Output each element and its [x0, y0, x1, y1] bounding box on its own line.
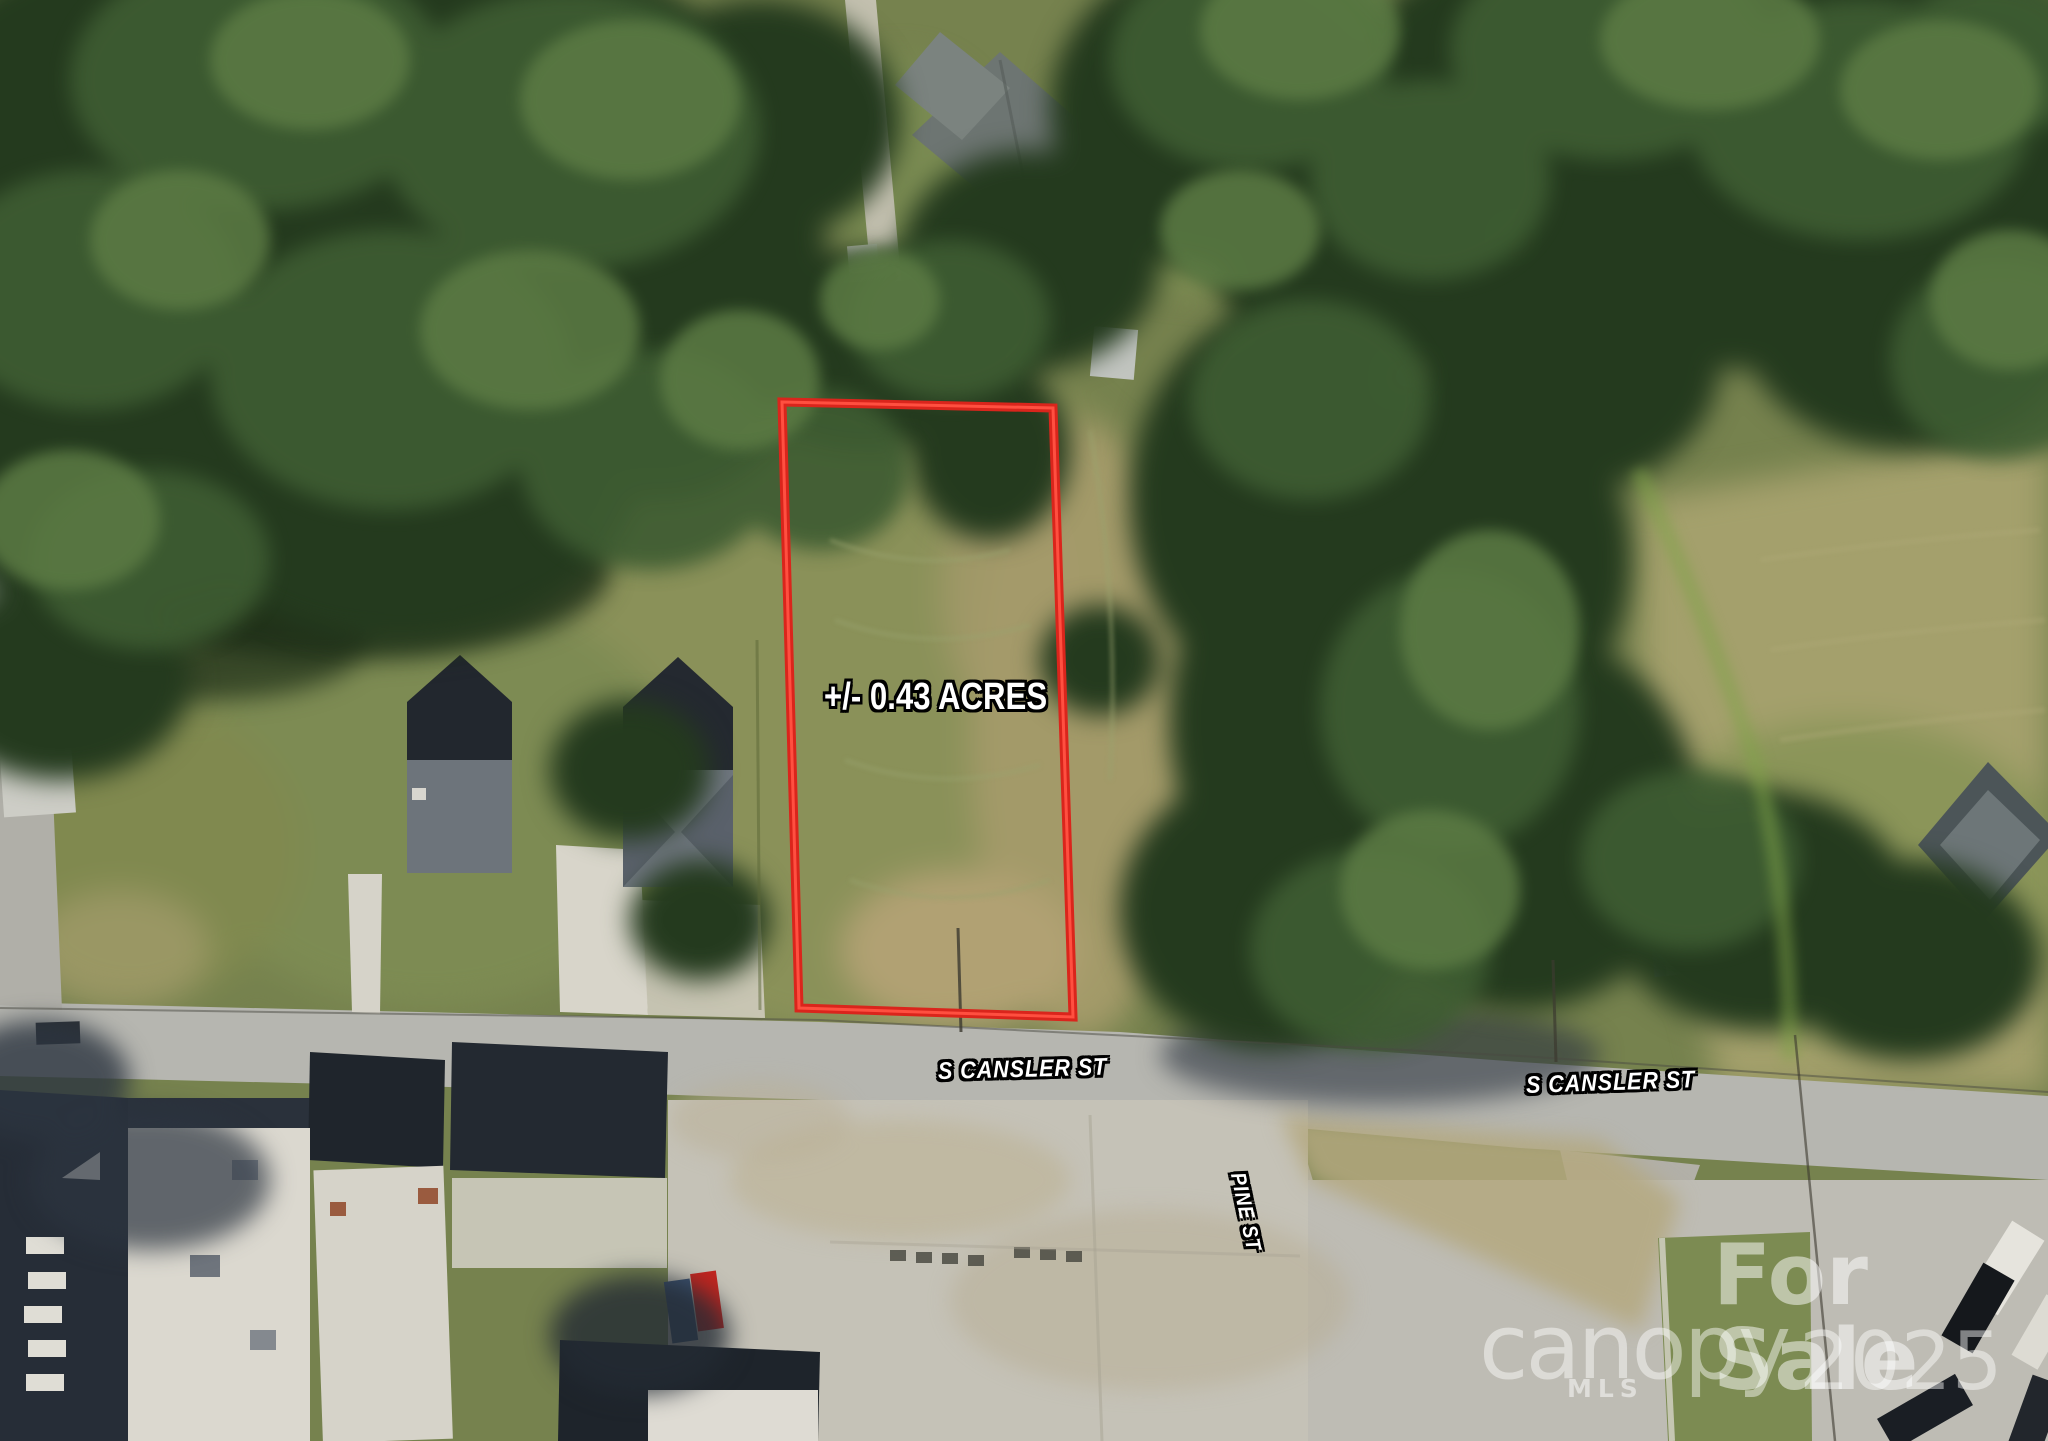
- white-roof-h: [648, 1390, 818, 1441]
- street-label-s-cansler-east: S CANSLER ST: [1526, 1066, 1696, 1100]
- aerial-scene: [0, 0, 2048, 1441]
- aerial-photo: +/- 0.43 ACRES S CANSLER ST S CANSLER ST…: [0, 0, 2048, 1441]
- acreage-label: +/- 0.43 ACRES: [824, 676, 1047, 719]
- dark-roof-a: [308, 1052, 445, 1168]
- watermark-year: 2025: [1799, 1322, 2003, 1402]
- house-left1-roof: [407, 760, 512, 873]
- driveway-house1: [348, 874, 382, 1014]
- street-label-s-cansler-west: S CANSLER ST: [938, 1054, 1108, 1086]
- watermark-mls: MLS: [1567, 1376, 1644, 1401]
- dark-building-f: [450, 1042, 668, 1178]
- white-strip-g: [452, 1178, 667, 1268]
